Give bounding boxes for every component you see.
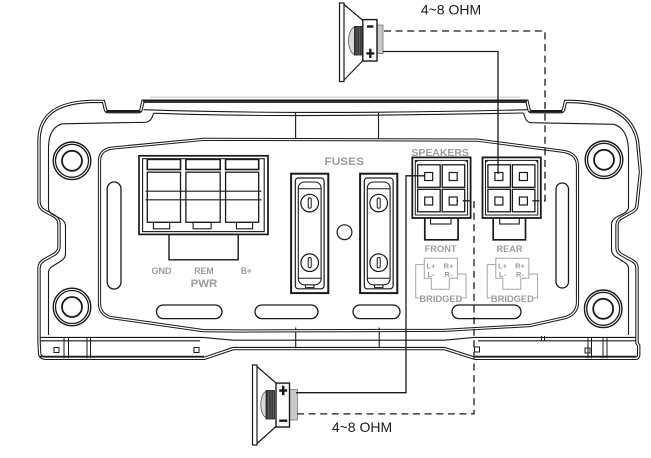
svg-text:BRIDGED: BRIDGED [419,294,462,305]
svg-text:L-: L- [427,270,435,279]
svg-text:R-: R- [445,270,453,279]
svg-text:FUSES: FUSES [325,156,365,168]
svg-text:PWR: PWR [191,278,218,290]
svg-text:4~8 OHM: 4~8 OHM [421,2,481,18]
svg-text:BRIDGED: BRIDGED [491,294,534,305]
svg-text:B+: B+ [241,266,252,277]
svg-text:L-: L- [499,270,507,279]
svg-text:4~8 OHM: 4~8 OHM [332,419,392,435]
svg-text:R-: R- [516,270,524,279]
svg-text:REAR: REAR [497,244,523,255]
svg-text:REM: REM [194,266,214,277]
svg-text:FRONT: FRONT [425,244,457,255]
svg-text:GND: GND [152,266,172,277]
